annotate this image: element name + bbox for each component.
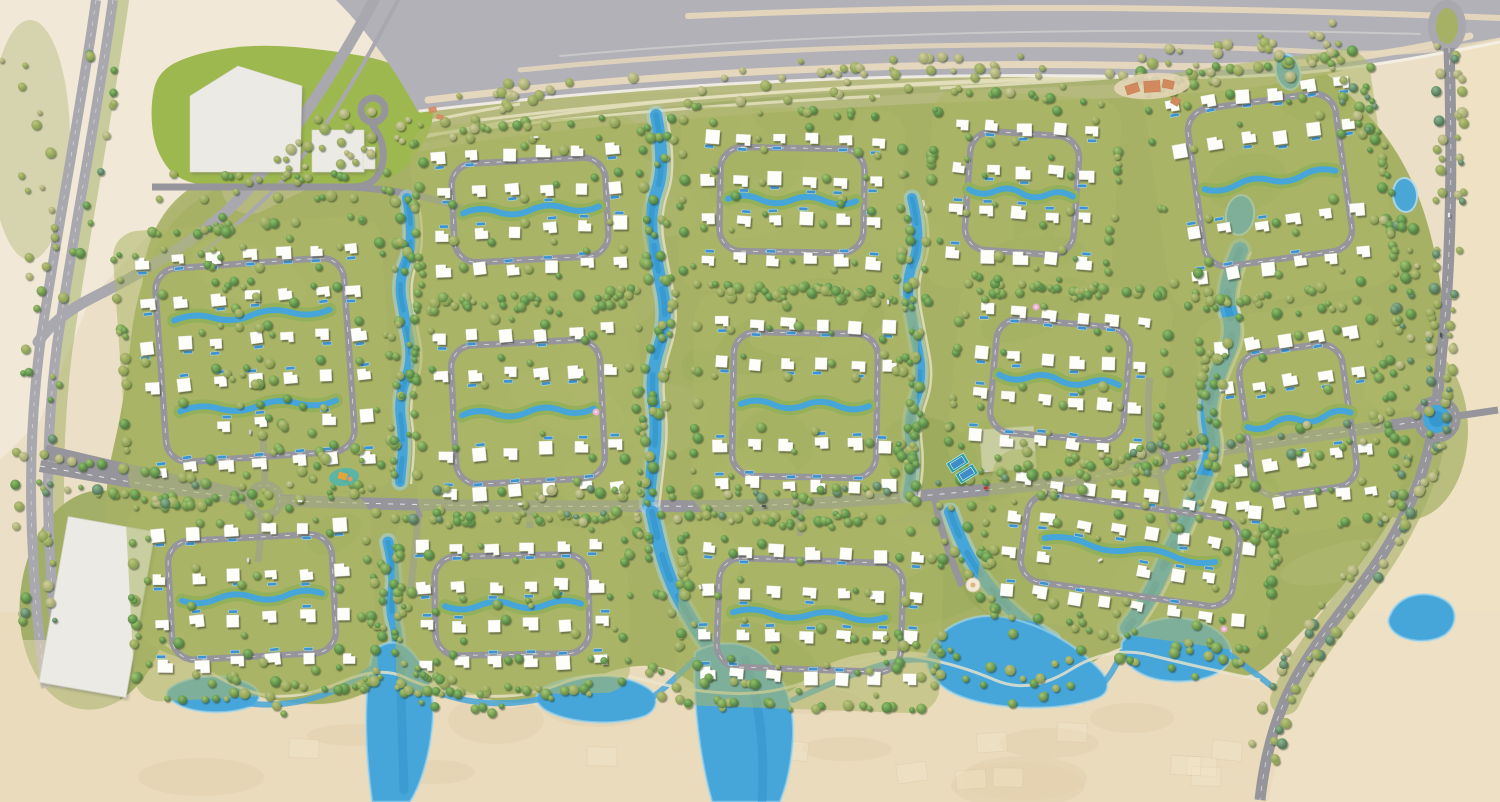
tree xyxy=(412,357,417,362)
tree xyxy=(321,686,327,692)
tree xyxy=(240,284,246,290)
tree xyxy=(514,654,523,663)
tree xyxy=(896,441,902,447)
tree xyxy=(386,187,394,195)
tree xyxy=(1414,263,1419,268)
pool xyxy=(837,561,846,565)
pool xyxy=(739,560,748,563)
villa xyxy=(968,428,981,441)
villa xyxy=(1248,505,1262,519)
tree xyxy=(1161,206,1167,212)
tree xyxy=(380,624,386,630)
tree xyxy=(330,484,335,489)
tree xyxy=(145,661,151,667)
tree xyxy=(607,219,613,225)
tree xyxy=(67,457,76,466)
tree xyxy=(1217,379,1227,389)
tree xyxy=(208,679,216,687)
tree xyxy=(1211,77,1220,86)
villa xyxy=(1177,532,1189,544)
tree xyxy=(959,557,964,562)
pool xyxy=(909,605,918,609)
tree xyxy=(456,93,462,99)
tree xyxy=(696,514,702,520)
tree xyxy=(964,156,970,162)
tree xyxy=(1343,420,1351,428)
tree xyxy=(649,195,658,204)
tree xyxy=(714,592,721,599)
tree xyxy=(879,335,886,342)
tree xyxy=(311,665,320,674)
tree xyxy=(525,597,531,603)
tree xyxy=(936,502,943,509)
tree xyxy=(503,78,513,88)
tree xyxy=(953,653,960,660)
tree xyxy=(636,531,643,538)
tree xyxy=(197,250,204,257)
tree xyxy=(731,191,740,200)
pool xyxy=(1133,438,1142,442)
tree xyxy=(1148,138,1155,145)
tree xyxy=(1105,345,1111,351)
tree xyxy=(1272,218,1281,227)
tree xyxy=(644,500,650,506)
tree xyxy=(1023,460,1032,469)
tree xyxy=(783,372,791,380)
tree xyxy=(464,304,471,311)
tree xyxy=(178,695,187,704)
tree xyxy=(831,286,841,296)
villa xyxy=(503,149,516,162)
tree xyxy=(25,368,34,377)
tree xyxy=(200,225,208,233)
tree xyxy=(1346,611,1353,618)
tree xyxy=(721,535,728,542)
pool xyxy=(809,667,818,670)
tree xyxy=(1108,478,1115,485)
tree xyxy=(971,271,979,279)
tree xyxy=(485,126,491,132)
tree xyxy=(1400,323,1405,328)
tree xyxy=(546,485,557,496)
pool xyxy=(877,436,886,439)
tree xyxy=(726,287,735,296)
tree xyxy=(389,436,398,445)
tree xyxy=(379,589,387,597)
tree xyxy=(1438,135,1448,145)
pool xyxy=(1042,546,1051,550)
tree xyxy=(591,306,598,313)
tree xyxy=(779,522,786,529)
tree xyxy=(910,480,920,490)
tree xyxy=(953,344,961,352)
tree xyxy=(1152,459,1158,465)
pool xyxy=(1019,138,1028,141)
tree xyxy=(1146,441,1156,451)
villa xyxy=(1041,353,1054,366)
pool xyxy=(1045,206,1054,209)
tree xyxy=(501,615,511,625)
tree xyxy=(788,284,798,294)
tree xyxy=(792,500,798,506)
tree xyxy=(320,453,331,464)
tree xyxy=(243,364,250,371)
tree xyxy=(637,489,643,495)
tree xyxy=(944,437,953,446)
tree xyxy=(1346,438,1352,444)
tree xyxy=(1277,738,1288,749)
tree xyxy=(1052,685,1059,692)
tree xyxy=(1275,726,1283,734)
pool xyxy=(508,197,517,201)
tree xyxy=(545,85,553,93)
tree xyxy=(644,545,652,553)
tree xyxy=(235,323,243,331)
tree xyxy=(1365,94,1371,100)
tree xyxy=(1360,438,1367,445)
tree xyxy=(595,487,606,498)
tree xyxy=(195,519,203,527)
tree xyxy=(596,134,602,140)
tree xyxy=(336,243,342,249)
pool xyxy=(812,475,821,478)
tree xyxy=(988,595,995,602)
tree xyxy=(677,569,686,578)
tree xyxy=(286,165,292,171)
tree xyxy=(405,369,414,378)
tree xyxy=(914,381,924,391)
villa xyxy=(739,588,750,599)
tree xyxy=(512,557,518,563)
tree xyxy=(663,132,672,141)
tree xyxy=(1097,628,1108,639)
tree xyxy=(414,307,420,313)
tree xyxy=(283,394,292,403)
tree xyxy=(122,333,128,339)
tree xyxy=(865,490,873,498)
tree xyxy=(573,290,584,301)
tree xyxy=(255,176,262,183)
tree xyxy=(788,707,793,712)
tree xyxy=(640,431,646,437)
tree xyxy=(935,480,940,485)
pool xyxy=(610,433,619,436)
tree xyxy=(948,394,955,401)
tree xyxy=(900,596,910,606)
future-plot-outline xyxy=(1057,722,1088,743)
tree xyxy=(1291,684,1300,693)
tree xyxy=(389,579,398,588)
tree xyxy=(657,511,664,518)
tree xyxy=(389,466,394,471)
villa xyxy=(1171,568,1186,583)
tree xyxy=(21,344,30,353)
tree xyxy=(840,64,848,72)
tree xyxy=(391,629,398,636)
tree xyxy=(966,89,973,96)
tree xyxy=(394,135,399,140)
tree xyxy=(854,670,860,676)
tree xyxy=(982,518,989,525)
tree xyxy=(994,288,1001,295)
tree xyxy=(333,685,343,695)
tree xyxy=(1214,373,1220,379)
tree xyxy=(745,292,755,302)
tree xyxy=(716,288,724,296)
tree xyxy=(677,557,688,568)
tree xyxy=(1192,620,1202,630)
pool xyxy=(745,471,754,474)
tree xyxy=(1039,221,1046,228)
tree xyxy=(299,403,307,411)
beach-pavilion xyxy=(966,578,980,592)
tree xyxy=(1357,476,1365,484)
tree xyxy=(108,488,118,498)
villa xyxy=(576,183,587,194)
tree xyxy=(1274,270,1282,278)
tree xyxy=(375,623,381,629)
tree xyxy=(253,572,261,580)
tree xyxy=(535,516,544,525)
tree xyxy=(524,264,533,273)
tree xyxy=(130,673,140,683)
tree xyxy=(1397,501,1406,510)
tree xyxy=(272,701,281,710)
tree xyxy=(432,687,440,695)
tree xyxy=(1071,624,1079,632)
tree xyxy=(901,353,909,361)
tree xyxy=(645,535,651,541)
tree xyxy=(1432,250,1440,258)
tree xyxy=(1071,453,1079,461)
tree xyxy=(1215,294,1226,305)
villa xyxy=(1303,495,1316,508)
tree xyxy=(917,328,924,335)
tree xyxy=(1397,222,1406,231)
tree xyxy=(1104,68,1114,78)
tree xyxy=(1236,298,1244,306)
tree xyxy=(1219,617,1225,623)
tree xyxy=(1109,633,1118,642)
pool xyxy=(1005,430,1014,434)
tree xyxy=(1201,365,1208,372)
tree xyxy=(1273,559,1279,565)
tree xyxy=(1325,635,1335,645)
tree xyxy=(1169,647,1180,658)
tree xyxy=(1390,305,1399,314)
pool xyxy=(878,626,887,629)
tree xyxy=(281,680,291,690)
tree xyxy=(286,235,293,242)
tree xyxy=(1222,39,1232,49)
tree xyxy=(1432,197,1438,203)
tree xyxy=(870,297,880,307)
tree xyxy=(739,67,746,74)
villa xyxy=(1273,130,1288,145)
tree xyxy=(1215,481,1225,491)
pool xyxy=(835,668,844,672)
tree xyxy=(1175,525,1183,533)
tree xyxy=(611,487,618,494)
tree xyxy=(638,181,649,192)
tree xyxy=(1390,433,1399,442)
tree xyxy=(865,667,873,675)
tree xyxy=(410,204,418,212)
tree xyxy=(965,134,972,141)
tree xyxy=(25,273,32,280)
tree xyxy=(950,88,957,95)
pool xyxy=(543,256,552,259)
tree xyxy=(1005,665,1016,676)
tree xyxy=(690,263,696,269)
tree xyxy=(1103,259,1109,265)
tree xyxy=(1314,487,1321,494)
tree xyxy=(979,546,985,552)
clubhouse-building xyxy=(1144,80,1161,92)
pool xyxy=(740,189,749,193)
tree xyxy=(1176,48,1182,54)
tree xyxy=(1375,339,1382,346)
tree xyxy=(1360,541,1369,550)
tree xyxy=(832,484,841,493)
tree xyxy=(1433,300,1441,308)
tree xyxy=(1037,490,1046,499)
tree xyxy=(620,558,629,567)
tree xyxy=(160,246,166,252)
tree xyxy=(1315,32,1324,41)
pool xyxy=(304,647,313,650)
tree xyxy=(1428,472,1437,481)
tree xyxy=(1425,343,1436,354)
tree xyxy=(1386,230,1394,238)
tree xyxy=(718,512,726,520)
tree xyxy=(827,359,835,367)
tree xyxy=(1403,384,1409,390)
tree xyxy=(679,590,690,601)
tree xyxy=(692,660,702,670)
tree xyxy=(1145,107,1152,114)
tree xyxy=(1163,443,1169,449)
tree xyxy=(690,424,699,433)
tree xyxy=(445,521,452,528)
tree xyxy=(92,484,103,495)
pool xyxy=(720,369,729,373)
tree xyxy=(950,400,957,407)
tree xyxy=(874,152,881,159)
tree xyxy=(1392,270,1398,276)
tree xyxy=(513,512,521,520)
tree xyxy=(1337,129,1346,138)
tree xyxy=(18,617,27,626)
tree xyxy=(977,403,984,410)
tree xyxy=(628,72,638,82)
tree xyxy=(527,292,536,301)
tree xyxy=(40,486,45,491)
tree xyxy=(149,467,160,478)
tree xyxy=(645,669,653,677)
tree xyxy=(573,477,581,485)
tree xyxy=(791,492,797,498)
tree xyxy=(613,295,619,301)
tree xyxy=(760,145,768,153)
tree xyxy=(211,278,219,286)
tree xyxy=(589,527,594,532)
tree xyxy=(548,291,557,300)
tree xyxy=(607,593,613,599)
tree xyxy=(533,301,538,306)
tree xyxy=(625,363,633,371)
tree xyxy=(806,288,816,298)
tree xyxy=(1076,645,1086,655)
tree xyxy=(1194,337,1202,345)
tree xyxy=(432,485,442,495)
villa xyxy=(878,441,891,454)
future-plot-outline xyxy=(1211,739,1243,761)
villa xyxy=(815,357,827,369)
tree xyxy=(853,147,863,157)
tree xyxy=(269,331,275,337)
tree xyxy=(520,142,528,150)
tree xyxy=(756,492,767,503)
tree xyxy=(395,213,405,223)
tree xyxy=(1188,438,1195,445)
tree xyxy=(556,310,562,316)
tree xyxy=(145,536,151,542)
tree xyxy=(1217,356,1223,362)
tree xyxy=(1293,508,1299,514)
tree xyxy=(201,696,208,703)
tree xyxy=(709,118,717,126)
pool xyxy=(953,198,962,202)
tree xyxy=(97,168,104,175)
tree xyxy=(619,453,629,463)
tree xyxy=(1028,90,1035,97)
pool xyxy=(476,222,485,226)
tree xyxy=(1426,366,1432,372)
pool xyxy=(770,186,779,189)
pool xyxy=(701,662,710,665)
tree xyxy=(1264,45,1272,53)
tree xyxy=(378,597,386,605)
tree xyxy=(667,114,676,123)
tree xyxy=(135,633,141,639)
tree xyxy=(522,686,531,695)
tree xyxy=(1326,47,1335,56)
tree xyxy=(48,397,54,403)
tree xyxy=(347,213,354,220)
tree xyxy=(1311,649,1321,659)
tree xyxy=(1431,86,1441,96)
tree xyxy=(1294,331,1303,340)
tree xyxy=(109,89,117,97)
pool xyxy=(228,538,237,542)
tree xyxy=(159,637,165,643)
tree xyxy=(1033,265,1038,270)
tree xyxy=(1239,517,1245,523)
pool xyxy=(454,616,463,619)
pool xyxy=(951,241,960,245)
tree xyxy=(1199,70,1205,76)
tree xyxy=(1339,267,1345,273)
tree xyxy=(1426,430,1433,437)
tree xyxy=(1204,214,1212,222)
tree xyxy=(299,683,307,691)
tree xyxy=(352,684,358,690)
tree xyxy=(612,626,617,631)
tree xyxy=(1056,469,1062,475)
tree xyxy=(1403,459,1411,467)
villa xyxy=(499,329,513,343)
